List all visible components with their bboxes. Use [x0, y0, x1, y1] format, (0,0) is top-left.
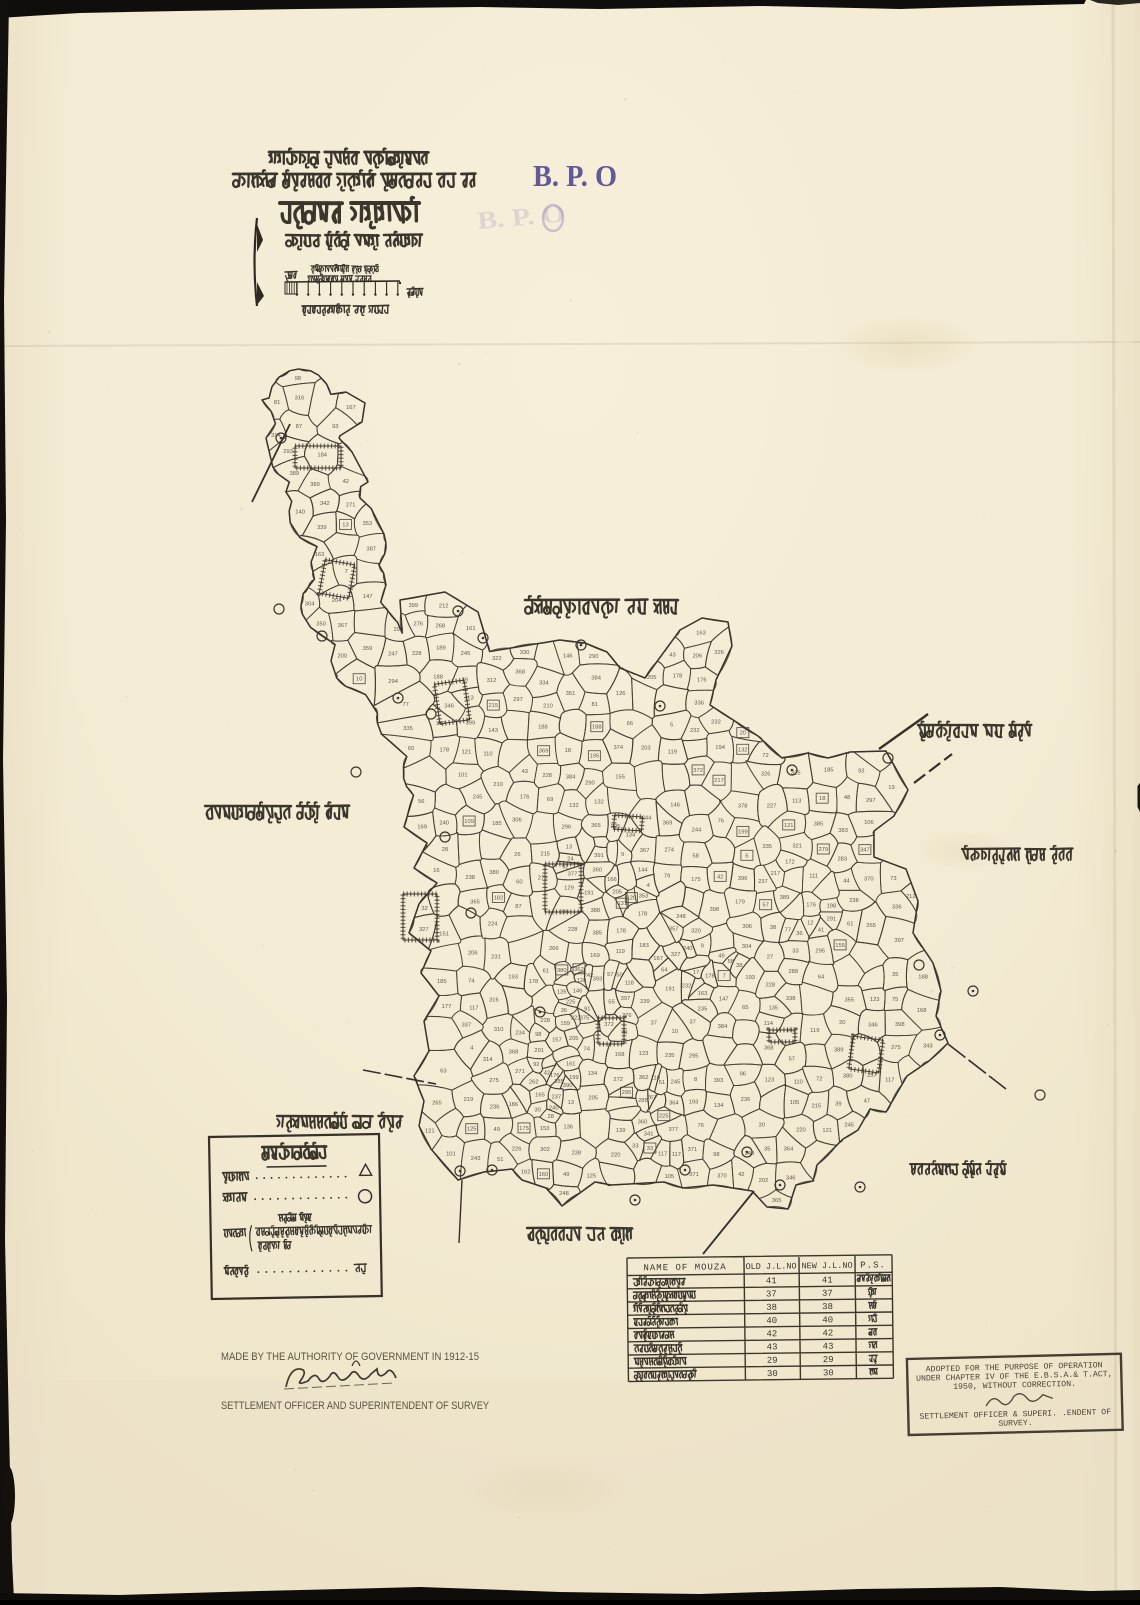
- svg-text:60: 60: [408, 746, 414, 752]
- svg-text:10: 10: [356, 677, 362, 683]
- svg-text:60: 60: [516, 879, 522, 885]
- svg-text:132: 132: [738, 747, 748, 753]
- svg-text:185: 185: [492, 821, 502, 827]
- svg-text:316: 316: [489, 997, 499, 1003]
- svg-text:93: 93: [332, 424, 338, 430]
- svg-text:346: 346: [444, 703, 454, 709]
- svg-text:162: 162: [521, 1169, 531, 1175]
- svg-text:169: 169: [590, 953, 600, 959]
- svg-text:205: 205: [612, 890, 622, 896]
- svg-text:320: 320: [691, 928, 701, 934]
- svg-text:76: 76: [697, 1123, 703, 1129]
- svg-text:MADE BY THE AUTHORITY OF GOVER: MADE BY THE AUTHORITY OF GOVERNMENT IN 1…: [221, 1351, 479, 1363]
- svg-text:188: 188: [538, 724, 548, 730]
- svg-text:235: 235: [665, 1053, 675, 1059]
- svg-text:186: 186: [508, 1102, 518, 1108]
- svg-text:43: 43: [669, 652, 675, 658]
- svg-text:228: 228: [568, 927, 578, 933]
- svg-text:57: 57: [762, 903, 768, 909]
- svg-text:245: 245: [671, 1080, 681, 1086]
- svg-text:110: 110: [794, 1080, 803, 1086]
- svg-text:236: 236: [490, 1105, 500, 1111]
- svg-text:234: 234: [515, 1031, 525, 1037]
- svg-text:74: 74: [468, 979, 475, 985]
- svg-text:OLD J.L.NO: OLD J.L.NO: [746, 1261, 797, 1272]
- svg-text:161: 161: [566, 1061, 576, 1067]
- svg-text:33: 33: [647, 1146, 653, 1152]
- svg-text:370: 370: [717, 1174, 727, 1180]
- svg-text:295: 295: [689, 1053, 699, 1059]
- svg-text:351: 351: [566, 691, 576, 697]
- svg-text:365: 365: [470, 899, 480, 905]
- svg-text:272: 272: [613, 1077, 623, 1083]
- svg-text:380: 380: [489, 870, 499, 876]
- svg-text:167: 167: [653, 956, 663, 962]
- svg-text:134: 134: [588, 1071, 598, 1077]
- svg-text:368: 368: [509, 1050, 519, 1056]
- svg-text:225: 225: [659, 1114, 669, 1120]
- svg-text:55: 55: [608, 1000, 614, 1006]
- svg-text:76: 76: [718, 819, 724, 825]
- svg-text:304: 304: [742, 944, 752, 950]
- svg-text:39: 39: [835, 1101, 841, 1107]
- svg-text:119: 119: [810, 1028, 819, 1034]
- svg-text:232: 232: [690, 728, 700, 734]
- svg-text:16: 16: [433, 868, 439, 874]
- svg-text:298: 298: [394, 627, 404, 633]
- svg-text:178: 178: [638, 912, 648, 918]
- svg-text:167: 167: [346, 405, 356, 411]
- svg-text:362: 362: [574, 967, 584, 973]
- svg-text:143: 143: [488, 728, 498, 734]
- svg-text:188: 188: [918, 974, 928, 980]
- svg-text:210: 210: [493, 782, 503, 788]
- svg-text:341: 341: [644, 1131, 654, 1137]
- svg-text:163: 163: [696, 630, 706, 636]
- svg-text:371: 371: [688, 1147, 698, 1153]
- svg-text:81: 81: [274, 400, 280, 406]
- svg-text:389: 389: [310, 482, 320, 488]
- svg-text:226: 226: [512, 1146, 522, 1152]
- svg-text:72: 72: [816, 1077, 822, 1083]
- svg-text:362: 362: [639, 1075, 649, 1081]
- svg-text:242: 242: [584, 973, 594, 979]
- svg-text:177: 177: [442, 1004, 452, 1010]
- svg-text:199: 199: [569, 1075, 579, 1081]
- svg-text:178: 178: [616, 928, 626, 934]
- svg-text:49: 49: [493, 1127, 499, 1133]
- svg-text:125: 125: [467, 1127, 477, 1133]
- svg-text:136: 136: [563, 1125, 573, 1131]
- svg-text:7: 7: [722, 974, 725, 980]
- svg-text:279: 279: [818, 847, 828, 853]
- svg-text:215: 215: [540, 852, 550, 858]
- svg-text:360: 360: [638, 1119, 648, 1125]
- svg-text:139: 139: [616, 1128, 626, 1134]
- svg-text:212: 212: [906, 894, 916, 900]
- svg-text:355: 355: [844, 998, 854, 1004]
- svg-text:306: 306: [742, 924, 752, 930]
- svg-text:12: 12: [807, 921, 813, 927]
- svg-text:184: 184: [317, 453, 327, 459]
- svg-text:205: 205: [647, 675, 657, 681]
- svg-text:389: 389: [289, 471, 299, 477]
- svg-text:96: 96: [740, 1072, 746, 1078]
- svg-text:185: 185: [437, 979, 447, 985]
- svg-text:13: 13: [568, 1100, 574, 1106]
- svg-text:36: 36: [796, 931, 802, 937]
- svg-text:271: 271: [515, 1069, 525, 1075]
- svg-text:304: 304: [305, 601, 315, 607]
- svg-text:295: 295: [815, 948, 825, 954]
- svg-text:58: 58: [692, 854, 698, 860]
- svg-text:393: 393: [593, 977, 603, 983]
- svg-text:92: 92: [533, 1062, 539, 1068]
- svg-text:327: 327: [419, 927, 429, 933]
- svg-text:398: 398: [709, 907, 719, 913]
- svg-text:357: 357: [669, 926, 679, 932]
- svg-text:50: 50: [616, 973, 622, 979]
- svg-text:35: 35: [892, 972, 898, 978]
- svg-text:231: 231: [491, 954, 501, 960]
- svg-text:98: 98: [713, 1152, 719, 1158]
- svg-text:41: 41: [822, 1275, 833, 1285]
- svg-text:274: 274: [664, 848, 674, 854]
- svg-text:384: 384: [718, 1024, 728, 1030]
- svg-text:347: 347: [860, 848, 870, 854]
- svg-text:175: 175: [519, 1126, 529, 1132]
- svg-text:77: 77: [402, 702, 408, 708]
- svg-text:240: 240: [549, 1105, 559, 1111]
- svg-text:193: 193: [508, 974, 518, 980]
- svg-text:198: 198: [827, 904, 837, 910]
- svg-text:42: 42: [766, 1329, 777, 1339]
- svg-text:217: 217: [714, 778, 724, 784]
- svg-text:397: 397: [894, 938, 904, 944]
- svg-text:204: 204: [332, 598, 342, 604]
- svg-text:38: 38: [822, 1302, 833, 1312]
- svg-text:265: 265: [866, 923, 876, 929]
- svg-text:343: 343: [923, 1043, 933, 1049]
- svg-text:41: 41: [766, 1276, 777, 1286]
- svg-text:377: 377: [668, 1127, 678, 1133]
- svg-text:217: 217: [771, 871, 781, 877]
- svg-text:106: 106: [864, 820, 874, 826]
- svg-text:134: 134: [626, 833, 636, 839]
- svg-text:43: 43: [522, 769, 528, 775]
- svg-text:220: 220: [796, 1127, 806, 1133]
- svg-text:SURVEY.: SURVEY.: [998, 1419, 1033, 1429]
- svg-text:163: 163: [698, 991, 708, 997]
- svg-text:367: 367: [640, 848, 650, 854]
- svg-text:5: 5: [745, 853, 748, 859]
- svg-text:330: 330: [520, 650, 530, 656]
- svg-text:375: 375: [580, 1015, 590, 1021]
- svg-text:40: 40: [766, 1316, 777, 1326]
- svg-text:153: 153: [540, 1126, 550, 1132]
- svg-text:266: 266: [549, 946, 559, 952]
- svg-text:393: 393: [714, 1078, 724, 1084]
- svg-text:72: 72: [762, 753, 768, 759]
- svg-text:205: 205: [588, 1095, 598, 1101]
- svg-text:247: 247: [388, 652, 398, 658]
- svg-text:93: 93: [858, 768, 864, 774]
- svg-text:49: 49: [718, 953, 724, 959]
- svg-text:290: 290: [585, 780, 595, 786]
- svg-text:243: 243: [471, 1156, 481, 1162]
- svg-text:236: 236: [741, 1097, 751, 1103]
- svg-text:265: 265: [432, 1100, 442, 1106]
- svg-text:365: 365: [591, 823, 601, 829]
- svg-text:114: 114: [764, 1021, 774, 1027]
- svg-text:42: 42: [717, 874, 723, 880]
- svg-text:126: 126: [616, 691, 626, 697]
- svg-text:219: 219: [464, 1097, 474, 1103]
- svg-text:147: 147: [719, 996, 729, 1002]
- svg-text:248: 248: [676, 914, 686, 920]
- svg-text:210: 210: [543, 704, 553, 710]
- svg-text:380: 380: [843, 1074, 853, 1080]
- svg-text:49: 49: [563, 1172, 569, 1178]
- svg-text:146: 146: [563, 654, 573, 660]
- svg-text:129: 129: [564, 885, 574, 891]
- svg-text:276: 276: [413, 621, 423, 627]
- svg-text:37: 37: [650, 1020, 656, 1026]
- svg-text:33: 33: [632, 1144, 638, 1150]
- svg-text:98: 98: [535, 1032, 541, 1038]
- svg-text:48: 48: [844, 795, 850, 801]
- svg-text:238: 238: [571, 1151, 581, 1157]
- svg-text:38: 38: [736, 963, 742, 969]
- svg-text:384: 384: [591, 676, 601, 682]
- svg-text:239: 239: [640, 999, 650, 1005]
- svg-text:368: 368: [764, 1046, 774, 1052]
- svg-text:291: 291: [534, 1048, 544, 1054]
- svg-text:160: 160: [539, 1172, 549, 1178]
- svg-text:179: 179: [735, 900, 745, 906]
- svg-text:79: 79: [664, 873, 670, 879]
- svg-text:155: 155: [835, 943, 845, 949]
- svg-text:NAME OF MOUZA: NAME OF MOUZA: [643, 1262, 726, 1273]
- svg-text:388: 388: [590, 908, 600, 914]
- svg-text:SETTLEMENT OFFICER AND SUPERIN: SETTLEMENT OFFICER AND SUPERINTENDENT OF…: [221, 1400, 490, 1412]
- svg-text:195: 195: [590, 754, 600, 760]
- svg-text:222: 222: [571, 1015, 581, 1021]
- svg-text:335: 335: [403, 726, 413, 732]
- svg-text:369: 369: [663, 820, 673, 826]
- svg-text:240: 240: [683, 946, 693, 952]
- svg-text:205: 205: [569, 1036, 579, 1042]
- svg-text:359: 359: [363, 646, 373, 652]
- svg-text:101: 101: [458, 773, 468, 779]
- svg-text:385: 385: [592, 931, 602, 937]
- svg-text:248: 248: [559, 1191, 569, 1197]
- svg-text:262: 262: [529, 1080, 539, 1086]
- svg-text:43: 43: [767, 1342, 778, 1352]
- svg-text:336: 336: [892, 905, 902, 911]
- svg-text:297: 297: [513, 697, 523, 703]
- svg-text:51: 51: [497, 1157, 503, 1163]
- svg-text:51: 51: [659, 1080, 665, 1086]
- svg-text:364: 364: [669, 1101, 679, 1107]
- svg-text:125: 125: [586, 1173, 596, 1179]
- svg-text:191: 191: [584, 891, 594, 897]
- svg-text:316: 316: [295, 396, 305, 402]
- svg-text:41: 41: [818, 928, 824, 934]
- svg-text:29: 29: [823, 1355, 834, 1365]
- svg-text:290: 290: [589, 654, 599, 660]
- svg-text:326: 326: [761, 771, 771, 777]
- svg-text:29: 29: [767, 1356, 778, 1366]
- svg-text:18: 18: [819, 796, 825, 802]
- svg-text:206: 206: [692, 653, 702, 659]
- svg-text:326: 326: [714, 650, 724, 656]
- svg-text:117: 117: [658, 1152, 667, 1158]
- svg-text:123: 123: [870, 997, 880, 1003]
- svg-text:111: 111: [809, 873, 818, 879]
- svg-text:163: 163: [315, 552, 325, 558]
- svg-text:117: 117: [469, 1006, 478, 1012]
- svg-text:30: 30: [758, 1123, 764, 1129]
- svg-text:38: 38: [770, 925, 776, 931]
- svg-text:151: 151: [439, 931, 449, 937]
- svg-text:109: 109: [464, 819, 474, 825]
- svg-text:18: 18: [565, 748, 571, 754]
- svg-text:185: 185: [824, 768, 834, 774]
- svg-text:66: 66: [627, 721, 633, 727]
- svg-text:74: 74: [583, 1047, 590, 1053]
- svg-text:13: 13: [342, 522, 348, 528]
- svg-text:191: 191: [665, 986, 675, 992]
- svg-text:65: 65: [742, 1005, 748, 1011]
- svg-text:119: 119: [616, 949, 625, 955]
- svg-text:338: 338: [786, 996, 796, 1002]
- svg-text:374: 374: [613, 745, 623, 751]
- svg-text:42: 42: [343, 479, 349, 485]
- svg-text:30: 30: [534, 1107, 540, 1113]
- svg-text:63: 63: [440, 1069, 446, 1075]
- svg-text:370: 370: [864, 877, 874, 883]
- svg-text:371: 371: [689, 1172, 699, 1178]
- svg-text:7: 7: [345, 569, 348, 575]
- svg-text:120: 120: [627, 896, 637, 902]
- svg-text:399: 399: [408, 603, 418, 609]
- svg-text:235: 235: [698, 1006, 708, 1012]
- svg-text:228: 228: [765, 983, 775, 989]
- svg-text:312: 312: [487, 678, 497, 684]
- svg-text:389: 389: [834, 1048, 844, 1054]
- svg-text:390: 390: [563, 1083, 573, 1089]
- svg-text:123: 123: [639, 1051, 649, 1057]
- svg-text:336: 336: [694, 701, 704, 707]
- svg-text:227: 227: [767, 803, 777, 809]
- svg-text:126: 126: [557, 990, 567, 996]
- svg-text:32: 32: [421, 906, 427, 912]
- svg-text:387: 387: [366, 546, 376, 552]
- svg-text:9: 9: [701, 944, 704, 950]
- svg-text:350: 350: [316, 622, 326, 628]
- svg-text:306: 306: [512, 817, 522, 823]
- svg-text:140: 140: [295, 510, 305, 516]
- svg-text:27: 27: [767, 954, 773, 960]
- svg-text:26: 26: [514, 852, 520, 858]
- svg-text:169: 169: [417, 825, 427, 831]
- svg-text:267: 267: [647, 1095, 657, 1101]
- svg-text:193: 193: [689, 1100, 699, 1106]
- svg-text:42: 42: [822, 1328, 833, 1338]
- svg-text:64: 64: [818, 974, 825, 980]
- svg-text:176: 176: [697, 678, 707, 684]
- svg-text:105: 105: [664, 1174, 674, 1180]
- svg-text:215: 215: [812, 1104, 822, 1110]
- svg-text:294: 294: [388, 679, 398, 685]
- svg-text:238: 238: [465, 875, 475, 881]
- svg-text:228: 228: [540, 1018, 550, 1024]
- svg-text:176: 176: [806, 902, 816, 908]
- svg-text:188: 188: [433, 674, 443, 680]
- svg-text:188: 188: [592, 725, 602, 731]
- svg-text:168: 168: [615, 1052, 625, 1058]
- svg-text:334: 334: [539, 680, 549, 686]
- svg-text:172: 172: [785, 860, 795, 866]
- svg-text:175: 175: [691, 877, 701, 883]
- svg-text:77: 77: [785, 927, 791, 933]
- svg-text:161: 161: [466, 626, 476, 632]
- svg-text:339: 339: [317, 525, 327, 531]
- svg-text:33: 33: [792, 949, 798, 955]
- svg-text:237: 237: [551, 1094, 561, 1100]
- svg-text:327: 327: [671, 952, 681, 958]
- svg-text:157: 157: [552, 1038, 562, 1044]
- svg-text:283: 283: [837, 857, 847, 863]
- svg-text:20: 20: [740, 731, 746, 737]
- svg-text:47: 47: [864, 1099, 870, 1105]
- svg-text:118: 118: [625, 981, 634, 987]
- svg-text:121: 121: [784, 823, 794, 829]
- svg-text:117: 117: [885, 1078, 894, 1084]
- svg-text:372: 372: [693, 768, 703, 774]
- svg-text:220: 220: [611, 1152, 621, 1158]
- svg-text:35: 35: [764, 1147, 770, 1153]
- svg-text:28: 28: [442, 847, 448, 853]
- svg-text:110: 110: [483, 752, 492, 758]
- svg-text:178: 178: [529, 979, 539, 985]
- svg-text:123: 123: [765, 1077, 775, 1083]
- svg-text:176: 176: [520, 794, 530, 800]
- svg-text:30: 30: [823, 1368, 834, 1378]
- svg-text:101: 101: [446, 1152, 456, 1158]
- svg-text:237: 237: [758, 879, 768, 885]
- svg-text:322: 322: [492, 656, 502, 662]
- svg-text:353: 353: [639, 894, 649, 900]
- svg-text:202: 202: [759, 1178, 769, 1184]
- svg-text:121: 121: [425, 1129, 435, 1135]
- svg-text:368: 368: [515, 669, 525, 675]
- svg-text:367: 367: [338, 623, 348, 629]
- svg-text:147: 147: [363, 594, 373, 600]
- svg-text:75: 75: [892, 997, 898, 1003]
- svg-text:NEW J.L.NO: NEW J.L.NO: [801, 1261, 852, 1272]
- svg-text:155: 155: [615, 775, 625, 781]
- svg-text:385: 385: [554, 1079, 564, 1085]
- svg-text:275: 275: [891, 1045, 901, 1051]
- svg-text:69: 69: [547, 797, 553, 803]
- svg-text:5: 5: [670, 722, 673, 728]
- svg-text:225: 225: [566, 999, 576, 1005]
- svg-text:56: 56: [418, 799, 424, 805]
- svg-text:193: 193: [745, 975, 755, 981]
- svg-text:288: 288: [788, 969, 798, 975]
